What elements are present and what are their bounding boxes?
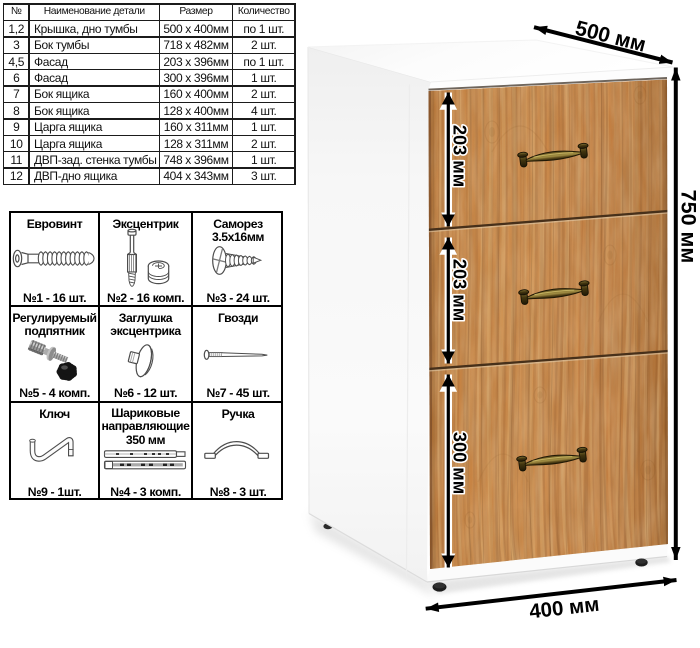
svg-text:203 мм: 203 мм [449, 125, 469, 187]
svg-text:300 мм: 300 мм [449, 432, 469, 494]
svg-text:750 мм: 750 мм [677, 190, 700, 264]
svg-text:203 мм: 203 мм [449, 259, 469, 321]
